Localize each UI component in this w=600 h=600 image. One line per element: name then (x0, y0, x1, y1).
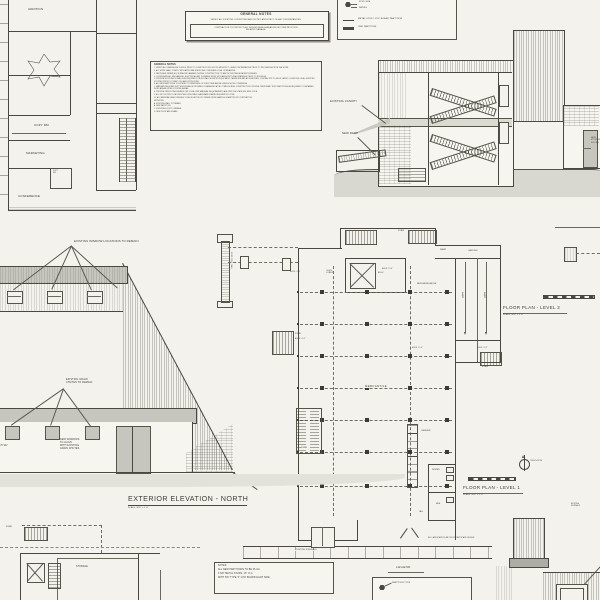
room-label-copy-rm: COPY RM. (34, 124, 50, 128)
existing-canopy-label: EXISTING CANOPY (330, 100, 357, 103)
new-windows-callout: NEW WINDOWS TO ALIGN WITH EXISTING GRAIN… (60, 439, 80, 451)
plan2-scale: SCALE: 3/32" = 1'-0" (503, 314, 524, 316)
grid-ticks (0, 2, 8, 195)
plan1-scale: SCALE: 3/32" = 1'-0" (463, 494, 484, 496)
notes-lines: NOTES:ALL NEW PARTITIONS TO BE 25 GA.3 5… (218, 565, 330, 581)
column (365, 290, 368, 293)
text-line: 5. PROVIDE BLOCKING IN WALLS AS REQUIRED… (154, 79, 315, 83)
shaft-wall (428, 72, 429, 185)
tower (513, 518, 545, 562)
window-inner (560, 588, 584, 600)
ground-line (0, 472, 235, 473)
text-line: 9. ALL EXIT DOORS TO BE PROVIDED WITH PA… (154, 95, 315, 97)
room-label-marketing: MARKETING (26, 152, 45, 156)
notes-line2: CONTRACTOR TO PROTECT ALL NON-WORKING AR… (192, 27, 320, 32)
door-mullion (132, 426, 133, 472)
grid-dash (576, 253, 600, 254)
ramp-arrow (465, 262, 466, 332)
wall (160, 570, 161, 600)
wall-pilaster (297, 323, 300, 326)
stoop-steps (398, 168, 426, 182)
core-wall (345, 258, 405, 259)
storage-label: STORAGE (76, 566, 88, 569)
text-line: 10. ALL MATERIALS AND FINISHES TO BE SEL… (154, 98, 315, 100)
column (320, 354, 323, 357)
list-items: 1. VERIFY ALL DIMENSIONS IN FIELD PRIOR … (154, 68, 315, 115)
fixture (446, 475, 454, 481)
column (445, 290, 448, 293)
stair-treads (297, 409, 306, 451)
stair-treads (408, 230, 437, 244)
wall (96, 190, 136, 191)
window (87, 291, 103, 304)
ramp-label: RAMP (440, 249, 446, 251)
blueprint-sheet: COPY RM. ADDITION COPY RM. MARKETING CON… (0, 0, 600, 600)
column (445, 322, 448, 325)
barn-door (116, 426, 151, 474)
sidewalk-hatch (243, 546, 492, 559)
column (408, 386, 411, 389)
wall (435, 245, 501, 246)
wall-hatch (379, 72, 407, 118)
graphic-scale (468, 477, 516, 481)
women-label: WOMEN (432, 469, 440, 471)
room-label-addition: ADDITION (28, 8, 43, 12)
wall (8, 140, 70, 141)
demo-cloud (27, 53, 61, 91)
wall (70, 31, 71, 115)
cap-band (509, 558, 549, 568)
detail-base (217, 301, 233, 308)
sidewalk-label: EXISTING SIDEWALK (284, 549, 328, 551)
stair-rail (126, 118, 127, 182)
text-line: 3 5/8" METAL STUDS, 16" O.C. (218, 573, 330, 576)
wall-pilaster (297, 387, 300, 390)
wall (555, 227, 600, 228)
legend-callout-rating: RATING (359, 7, 367, 9)
text-line: A. EXISTING WALL TO REMAIN (154, 104, 315, 106)
wall (500, 245, 501, 363)
column (445, 386, 448, 389)
fixture (446, 467, 454, 473)
text-line: 1. VERIFY ALL DIMENSIONS IN FIELD PRIOR … (154, 68, 315, 70)
wall (20, 553, 160, 554)
text-line: C. EXISTING DOOR TO REMAIN (154, 109, 315, 111)
wall (20, 553, 21, 600)
window (47, 291, 63, 304)
wall (340, 228, 341, 248)
stair-label: STAIR (398, 230, 404, 232)
column (320, 484, 323, 487)
elevation-scale: SCALE: 3/32" = 1'-0" (128, 507, 149, 509)
stair-label: STAIR (301, 447, 307, 449)
window (7, 291, 23, 304)
stair-treads (24, 527, 48, 541)
wall (8, 115, 70, 116)
counter (12, 133, 66, 134)
partition-type-label: PARTITION TYPE (392, 582, 410, 585)
ground-wash (0, 474, 405, 487)
column (365, 354, 368, 357)
wall-pilaster (297, 291, 300, 294)
barn-doors-callout: NEW "BARN-STYLE" DOORS (0, 442, 8, 451)
text-line: D. NEW DOOR AND FRAME (154, 112, 315, 114)
cashier-counter (407, 424, 418, 488)
column (445, 418, 448, 421)
stair-label: STAIR (295, 333, 301, 335)
grain-chute (85, 426, 100, 440)
legend-frame (372, 577, 472, 600)
column (365, 484, 368, 487)
ramp-arrow (486, 262, 487, 332)
tiny-note: EXISTING SIDEWALK (571, 504, 580, 508)
wall-stub (282, 258, 291, 271)
legend-callout-stud: STUD SIZE (359, 1, 370, 3)
detail-label: EXIST. CONC. WALL (229, 252, 231, 269)
notes-title: GENERAL NOTES (185, 13, 327, 17)
stair-treads (310, 409, 319, 451)
metal-stud-symbol (343, 20, 354, 21)
door-opening (499, 122, 509, 144)
jan-label: JAN. (419, 511, 423, 513)
annex-brick (564, 106, 599, 126)
detail-wall (221, 241, 230, 303)
wall (357, 520, 358, 540)
text-line: ALL NEW PARTITIONS TO BE 25 GA. (218, 569, 330, 572)
wall (96, 103, 136, 104)
column (320, 386, 323, 389)
wall (428, 520, 455, 521)
list-heading: GENERAL NOTES (154, 64, 176, 67)
text-line: 2. ALL WORK SHALL COMPLY WITH APPLICABLE… (154, 71, 315, 73)
fixture (446, 497, 454, 503)
wall-stub (240, 256, 249, 269)
annex-door (583, 130, 598, 168)
leader (351, 4, 357, 5)
legend-row2-label: CMU PARTITION (358, 26, 376, 29)
wall (8, 31, 96, 32)
wall (136, 0, 137, 190)
stair-treads (480, 352, 502, 366)
column (365, 418, 368, 421)
stair-treads (48, 563, 61, 589)
north-arrowhead (522, 455, 524, 458)
legend-row1-label: METAL STUD / GYP. BOARD PARTITION (358, 18, 402, 21)
grain-chute (5, 426, 20, 440)
elev-spot: ELEV: 4'-6" (290, 271, 301, 273)
wall-hatch (496, 566, 513, 600)
planter (311, 527, 335, 548)
new-ramp-label: NEW RAMP (342, 132, 358, 135)
stair-label: STAIR (482, 366, 488, 368)
north-arrow-icon (519, 459, 530, 470)
tower (513, 30, 565, 122)
cmu-symbol (343, 27, 354, 30)
arrowhead (464, 332, 466, 335)
column (564, 247, 577, 262)
elev-spot: ELEV: 9'-4" (412, 347, 423, 349)
legend-title: LEGEND (396, 566, 411, 570)
elev-spot: ELEV: 4'-2" (477, 347, 488, 349)
stair-treads (119, 118, 136, 182)
mercantile-label: MERCANTILE (364, 385, 388, 388)
core-wall (405, 258, 406, 292)
text-line: 7. MAINTAIN REQUIRED EXIT WIDTHS AND ACC… (154, 87, 315, 91)
wall (428, 464, 455, 465)
wall (96, 0, 97, 190)
column (365, 450, 368, 453)
text-line: NOTES: (218, 565, 330, 568)
wall-pilaster (297, 355, 300, 358)
stair-treads (345, 230, 377, 245)
column (445, 450, 448, 453)
ramp-label: RAMP (483, 292, 485, 298)
exterior-stair (272, 331, 294, 355)
column (320, 322, 323, 325)
column (445, 484, 448, 487)
text-line: 3. PATCH AND REPAIR ALL SURFACES DAMAGED… (154, 74, 315, 76)
arrowhead (485, 332, 487, 335)
elev-spot: ELEV: 3'-6" (295, 338, 306, 340)
column (365, 322, 368, 325)
wall (428, 492, 455, 493)
elevation-title: EXTERIOR ELEVATION - NORTH (128, 495, 248, 504)
wall (435, 258, 501, 259)
column (408, 418, 411, 421)
landing-label: LANDING (468, 250, 478, 252)
room-label: COPY RM. (53, 171, 58, 175)
wall (298, 248, 342, 249)
graphic-scale (543, 295, 595, 299)
chutes-callout: EXISTING GRAIN CHUTES TO REMAIN (66, 378, 92, 384)
cashier-label: CASHIER (420, 430, 432, 432)
men-label: MEN (436, 503, 440, 505)
column (408, 354, 411, 357)
elev-spot: ELEV: 9'-4" (382, 268, 393, 270)
wall (138, 553, 139, 600)
door-opening (499, 85, 509, 107)
notes-line1: VERIFY ALL EXISTING CONDITIONS AND NOTIF… (188, 19, 324, 21)
existing-wall-dashed (228, 247, 298, 248)
door-leaf (411, 528, 419, 538)
stair-label: STAIR (6, 526, 12, 528)
wall (96, 33, 136, 34)
core-wall (345, 258, 346, 292)
grain-chute (45, 426, 60, 440)
true-north-label: TRUE NORTH (530, 460, 542, 462)
plan2-title: FLOOR PLAN - LEVEL 2 (503, 305, 560, 311)
room-label-conference: CONFERENCE (18, 195, 40, 199)
wall (57, 558, 138, 559)
wall (8, 210, 136, 211)
mezzanine-label: MEZZANINE ABOVE (416, 283, 437, 285)
leader (351, 7, 357, 8)
landing-wall (455, 340, 500, 341)
column (408, 322, 411, 325)
landscape-note: RE: LANDSCAPE PLAN FOR STREETSCAPE DESIG… (428, 537, 474, 539)
section-right-label: NEW STOREFRONT DOORS (591, 137, 600, 144)
door-leaf (400, 528, 408, 538)
text-line: 8. PROVIDE FIRE EXTINGUISHERS PER LOCAL … (154, 92, 315, 94)
column (408, 290, 411, 293)
legend-underline (388, 572, 424, 573)
windows-callout: EXISTING WINDOW LOCATIONS TO REMAIN (74, 240, 139, 243)
elev-label: ELEV. (378, 272, 384, 274)
column (445, 354, 448, 357)
plan1-title: FLOOR PLAN - LEVEL 1 (463, 485, 520, 491)
text-line: KEYNOTES: (154, 101, 315, 103)
leader (583, 148, 591, 149)
column (320, 290, 323, 293)
wall (455, 258, 456, 540)
text-line: WITH 5/8" TYPE 'X' GYP. BOARD EACH SIDE (218, 577, 330, 580)
wall (340, 228, 436, 229)
wall (96, 113, 136, 114)
title-underline (128, 505, 247, 506)
ramp-label: RAMP (461, 292, 463, 298)
